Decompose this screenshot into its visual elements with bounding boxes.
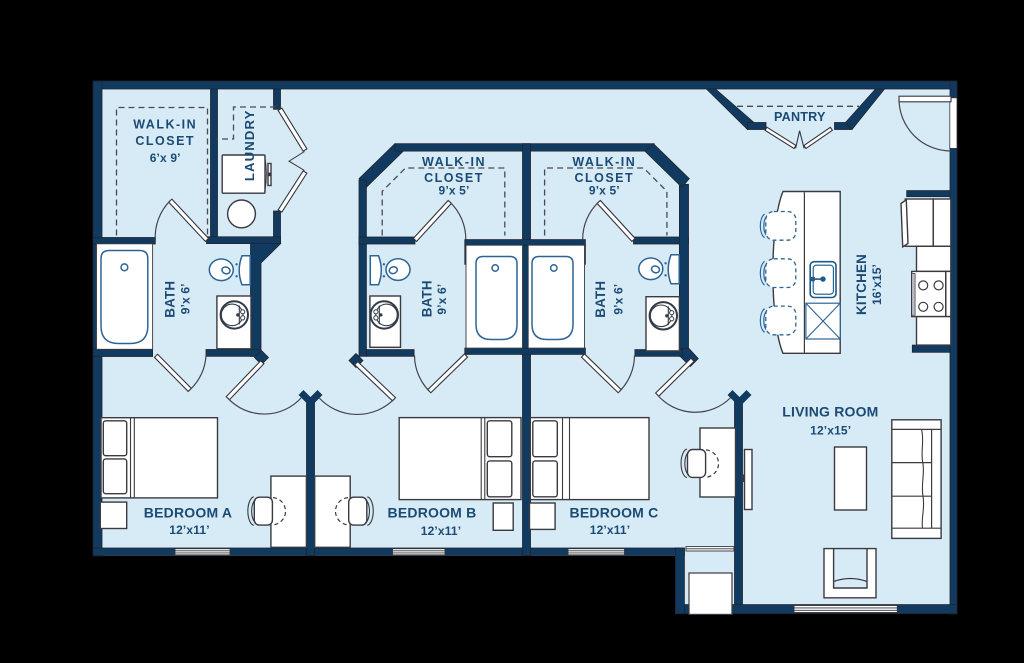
svg-text:12’x11’: 12’x11’ xyxy=(421,524,461,538)
svg-text:BATH: BATH xyxy=(162,281,177,318)
svg-text:BEDROOM C: BEDROOM C xyxy=(570,505,659,521)
svg-text:16’x15’: 16’x15’ xyxy=(870,264,884,305)
svg-text:BEDROOM B: BEDROOM B xyxy=(388,505,477,521)
svg-text:6’x 9’: 6’x 9’ xyxy=(150,151,181,165)
svg-text:CLOSET: CLOSET xyxy=(135,134,195,148)
svg-text:WALK-IN: WALK-IN xyxy=(422,155,486,169)
svg-text:12’x11’: 12’x11’ xyxy=(169,523,209,537)
svg-text:9’x 6’: 9’x 6’ xyxy=(612,284,626,315)
svg-text:9’x 5’: 9’x 5’ xyxy=(439,183,470,197)
svg-text:LIVING ROOM: LIVING ROOM xyxy=(782,403,878,419)
svg-text:PANTRY: PANTRY xyxy=(774,110,826,124)
svg-text:12’x11’: 12’x11’ xyxy=(590,523,630,537)
svg-text:LAUNDRY: LAUNDRY xyxy=(242,109,257,181)
svg-text:12’x15’: 12’x15’ xyxy=(810,424,851,438)
svg-text:WALK-IN: WALK-IN xyxy=(133,117,197,131)
svg-text:BATH: BATH xyxy=(420,280,435,317)
svg-text:9’x 6’: 9’x 6’ xyxy=(179,283,193,314)
svg-text:KITCHEN: KITCHEN xyxy=(854,254,869,315)
svg-text:WALK-IN: WALK-IN xyxy=(572,155,636,169)
svg-text:BEDROOM A: BEDROOM A xyxy=(144,505,232,521)
svg-text:9’x 5’: 9’x 5’ xyxy=(589,183,620,197)
svg-text:9’x 6’: 9’x 6’ xyxy=(435,284,449,315)
svg-text:BATH: BATH xyxy=(593,281,608,318)
